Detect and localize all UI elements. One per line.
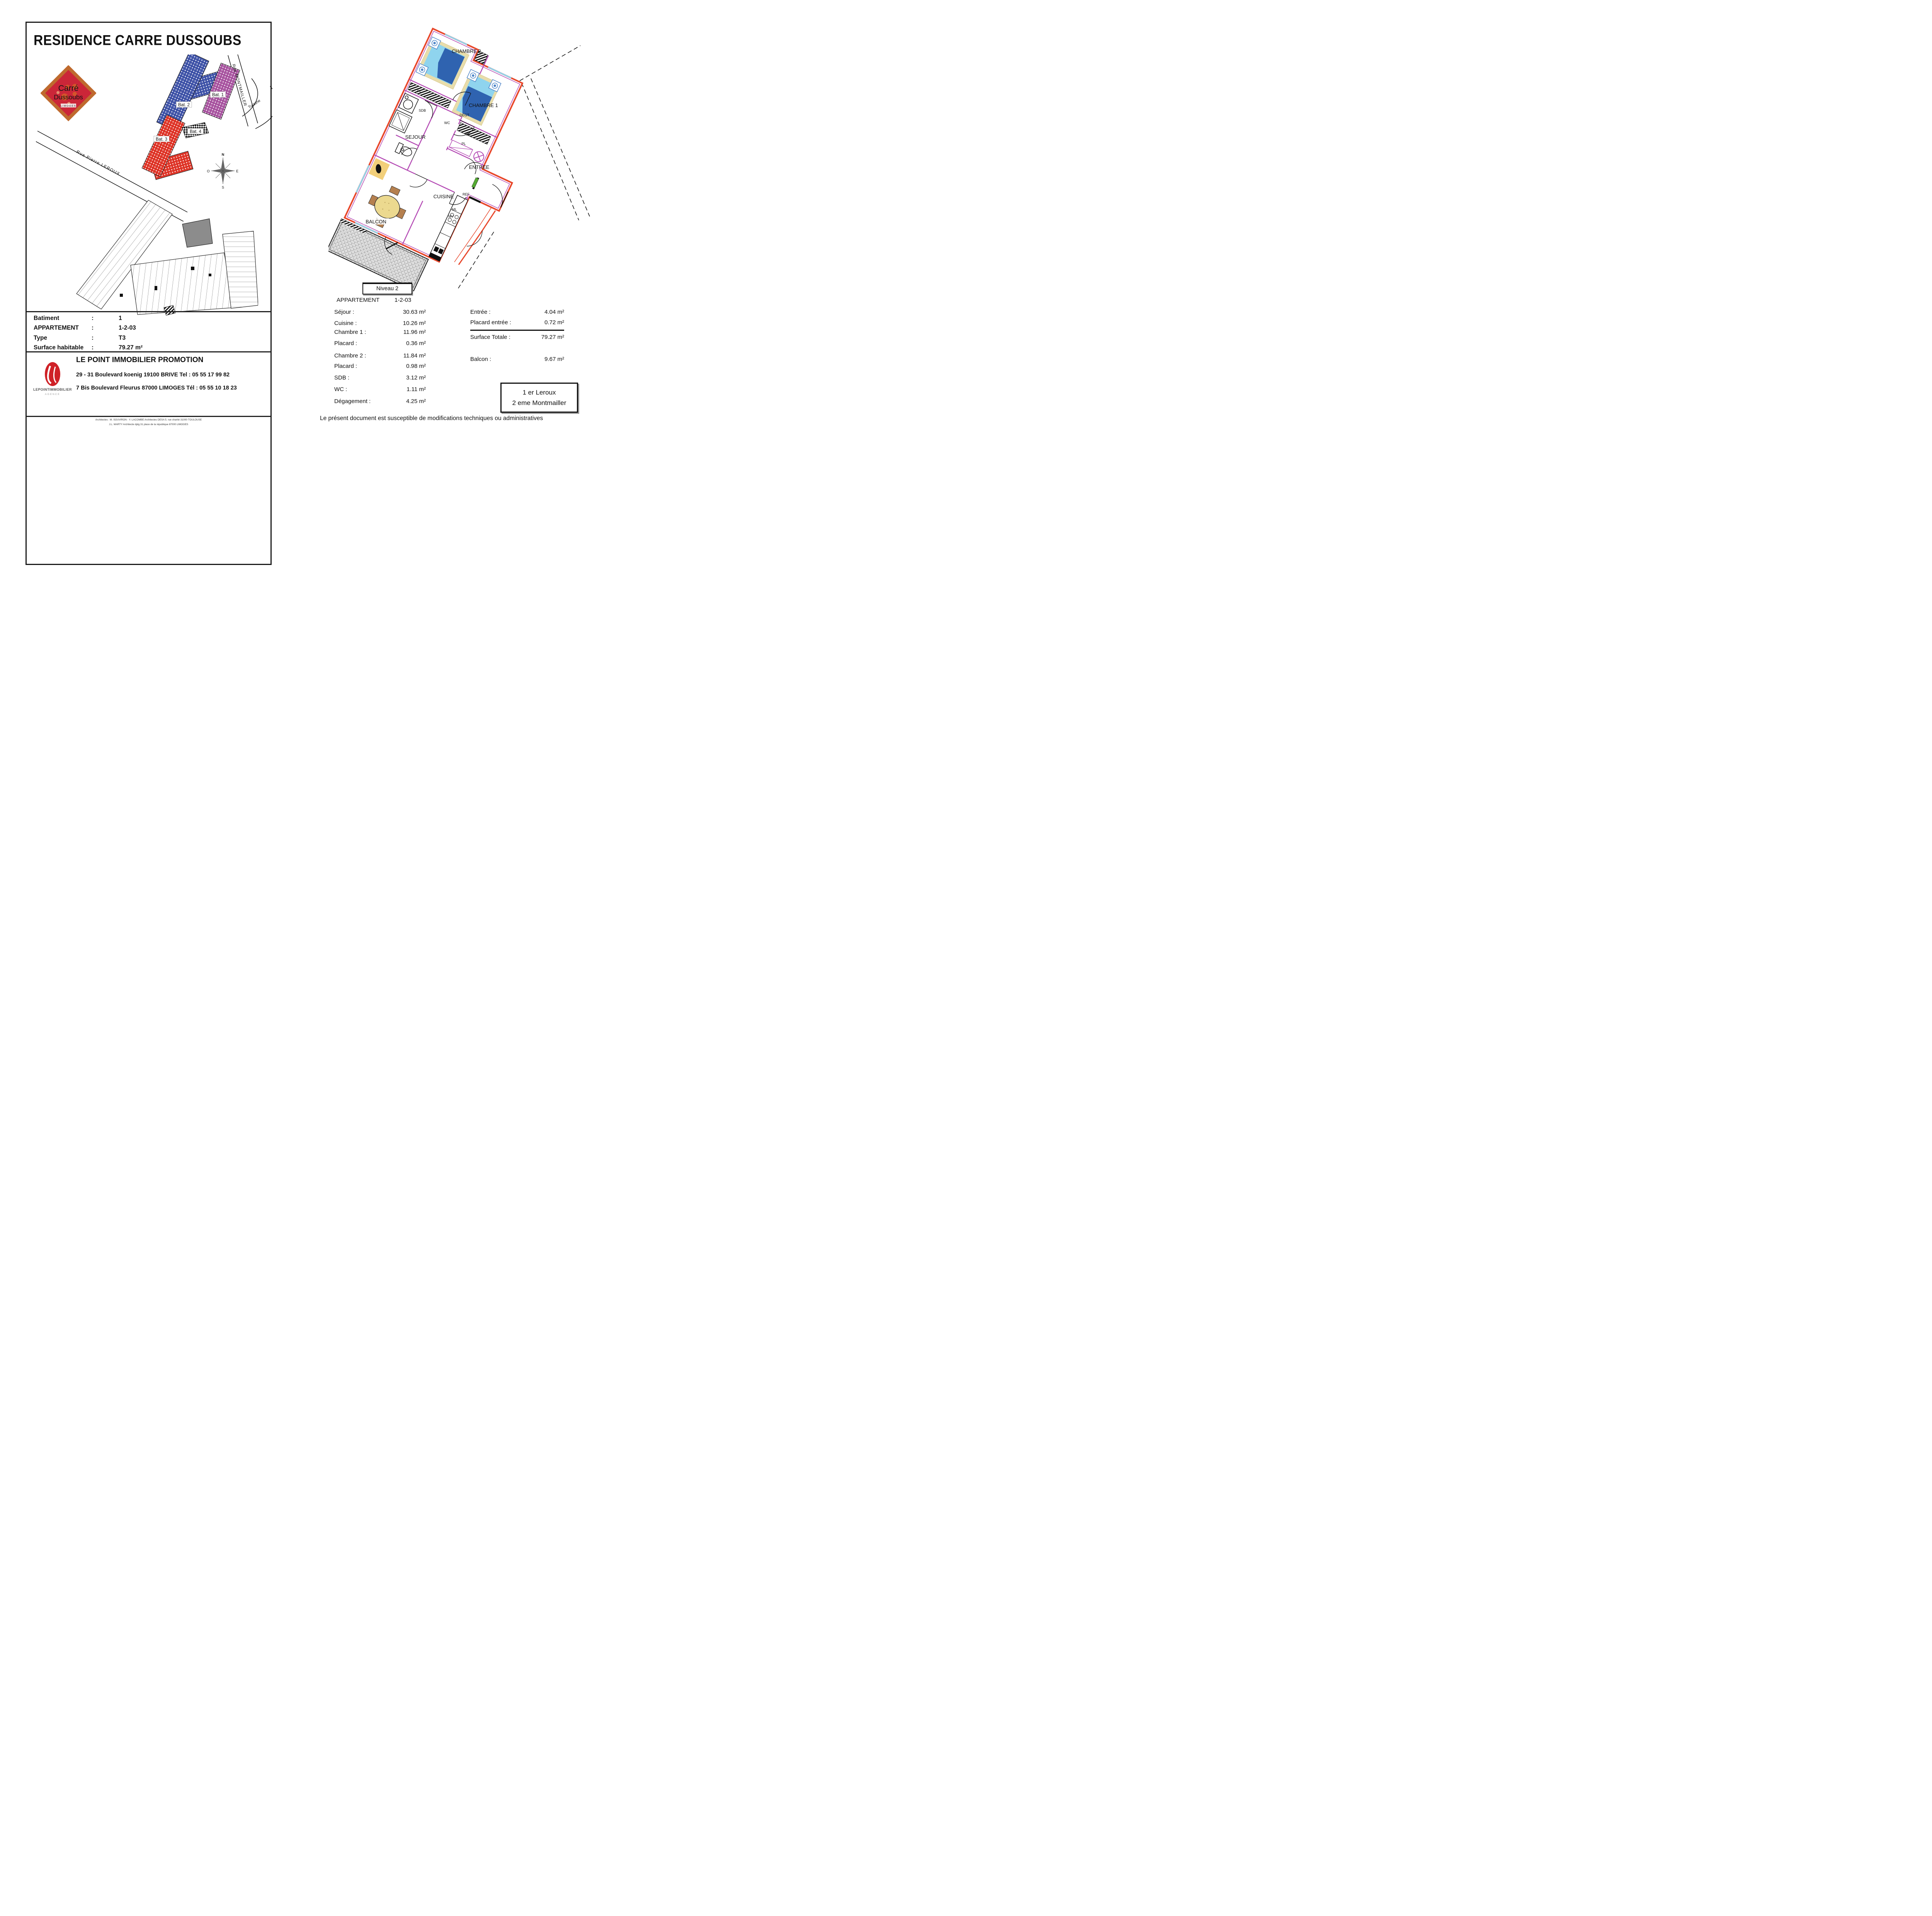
label-cuisine: CUISINE	[434, 194, 454, 199]
divider-1	[27, 311, 270, 312]
label-pl1: PL	[417, 89, 421, 93]
label-pl2: PL	[466, 133, 470, 136]
svg-text:N: N	[222, 153, 224, 157]
street-leroux-label: Rue Pierre LEROUX	[76, 150, 121, 177]
svg-text:Bat. 2: Bat. 2	[178, 103, 190, 107]
floors-box: 1 er Leroux 2 eme Montmailler	[500, 383, 578, 413]
svg-text:S: S	[222, 185, 224, 189]
svg-text:Bat. 4: Bat. 4	[190, 129, 202, 134]
svg-text:E: E	[236, 169, 238, 173]
promoter-address-1: 29 - 31 Boulevard koenig 19100 BRIVE Tel…	[76, 372, 230, 378]
label-pl3: PL	[461, 142, 466, 146]
divider-3	[27, 416, 270, 417]
building-bat3	[142, 115, 193, 180]
page-title: RESIDENCE CARRE DUSSOUBS	[34, 32, 241, 49]
label-chambre2: CHAMBRE 2	[452, 48, 481, 54]
label-wc: WC	[444, 121, 450, 125]
promoter-name: LE POINT IMMOBILIER PROMOTION	[76, 356, 203, 364]
apartment-floor-plan: CHAMBRE 2 CHAMBRE 1 SEJOUR CUISINE ENTRE…	[328, 15, 599, 301]
svg-text:Bat. 1: Bat. 1	[212, 93, 224, 97]
lepoint-logo-icon	[42, 361, 64, 387]
divider-2	[27, 351, 270, 352]
svg-text:Bat. 3: Bat. 3	[156, 137, 167, 142]
disclaimer: Le présent document est susceptible de m…	[320, 415, 594, 422]
total-rule	[470, 330, 564, 331]
svg-text:O: O	[207, 169, 209, 173]
label-sdb: SDB	[419, 109, 426, 112]
label-sejour: SEJOUR	[405, 134, 426, 140]
street-tulasne-label: Tulasne	[248, 99, 262, 110]
label-ml: ML	[452, 208, 457, 211]
floors-line-2: 2 eme Montmailler	[502, 398, 577, 408]
architects-line-2: J.L. MARTY Architecte dplg 31 place de l…	[27, 423, 270, 426]
label-chambre1: CHAMBRE 1	[469, 102, 498, 108]
compass-icon: N O E S	[207, 153, 238, 189]
level-box: Niveau 2	[362, 282, 412, 294]
label-entree: ENTREE	[469, 164, 490, 170]
left-page: RESIDENCE CARRE DUSSOUBS	[26, 22, 272, 565]
apartment-geometry	[328, 27, 557, 301]
lepoint-brand-sub: AGENCE	[27, 393, 78, 396]
label-mv: MV	[448, 214, 454, 218]
architects-line-1: Architectes : M. SOUVIRON - Y. LACOMBE A…	[27, 419, 270, 421]
level-footprint-plan	[73, 196, 258, 316]
label-degt: DEGT	[459, 113, 469, 117]
highlighted-apartment	[182, 219, 213, 247]
floors-line-1: 1 er Leroux	[502, 387, 577, 398]
label-balcon: BALCON	[366, 219, 386, 225]
lepoint-brand: LEPOINTIMMOBILIER	[27, 388, 78, 391]
promoter-address-2: 7 Bis Boulevard Fleurus 87000 LIMOGES Té…	[76, 385, 237, 391]
label-ref: REF	[463, 192, 470, 196]
